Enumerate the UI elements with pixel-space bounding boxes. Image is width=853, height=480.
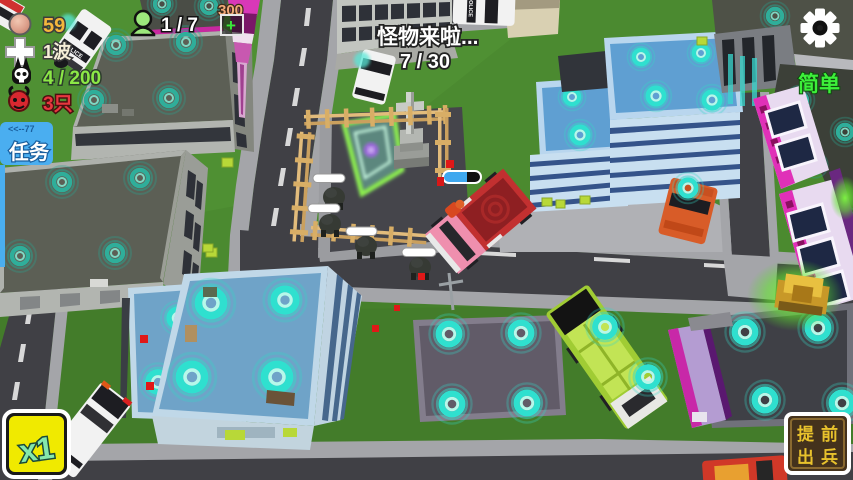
svg-text:POLICE: POLICE [467,0,474,17]
svg-text:怪物来啦...: 怪物来啦... [377,25,479,49]
svg-text:任务: 任务 [8,140,50,164]
svg-text:x1: x1 [17,430,56,469]
svg-text:1 / 7: 1 / 7 [161,15,198,36]
svg-text:3只: 3只 [43,94,73,115]
svg-text:<<--77: <<--77 [8,124,35,134]
svg-text:出兵: 出兵 [797,447,845,467]
svg-text:提前: 提前 [797,424,845,444]
svg-text:4 / 200: 4 / 200 [43,68,101,89]
svg-text:59: 59 [43,15,65,37]
svg-text:1波: 1波 [43,41,72,62]
svg-text:简单: 简单 [798,72,840,96]
svg-text:7 / 30: 7 / 30 [400,51,450,73]
svg-text:+: + [226,16,236,35]
